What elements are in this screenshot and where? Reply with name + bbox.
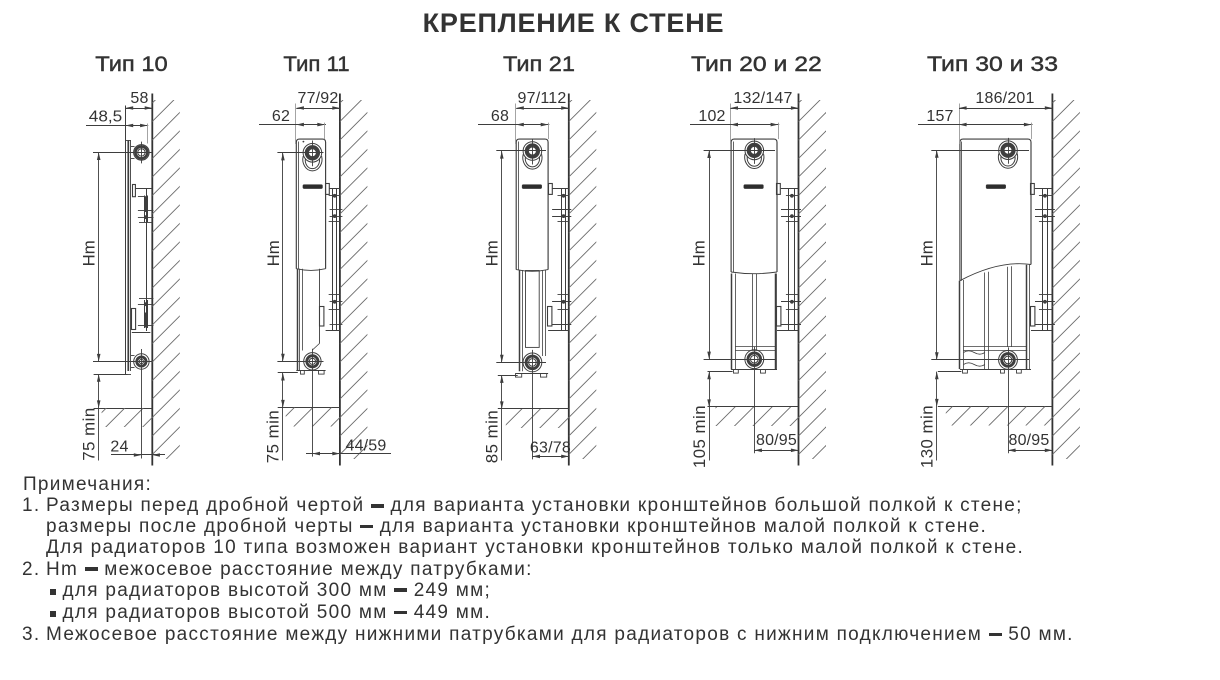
svg-text:63/78: 63/78 xyxy=(530,439,571,456)
svg-text:186/201: 186/201 xyxy=(975,90,1034,107)
svg-text:102: 102 xyxy=(698,108,725,125)
svg-text:80/95: 80/95 xyxy=(756,432,797,449)
svg-text:77/92: 77/92 xyxy=(297,90,338,107)
svg-text:Тип 30 и 33: Тип 30 и 33 xyxy=(927,51,1058,76)
svg-text:68: 68 xyxy=(491,108,509,125)
svg-text:157: 157 xyxy=(926,108,953,125)
svg-text:85 min: 85 min xyxy=(483,410,502,463)
svg-text:Hm: Hm xyxy=(482,240,501,266)
svg-text:Hm: Hm xyxy=(79,240,98,266)
svg-text:Тип 11: Тип 11 xyxy=(283,51,349,76)
svg-text:105 min: 105 min xyxy=(690,405,709,468)
svg-text:Тип 10: Тип 10 xyxy=(95,51,168,76)
svg-text:130 min: 130 min xyxy=(918,405,937,468)
svg-text:Hm: Hm xyxy=(690,240,709,266)
svg-text:24: 24 xyxy=(110,438,128,455)
svg-text:Тип 21: Тип 21 xyxy=(503,51,575,76)
svg-text:80/95: 80/95 xyxy=(1008,432,1049,449)
svg-text:Hm: Hm xyxy=(264,240,283,266)
svg-text:75 min: 75 min xyxy=(264,410,283,463)
svg-text:48,5: 48,5 xyxy=(89,109,123,126)
svg-text:132/147: 132/147 xyxy=(733,90,792,107)
svg-text:Тип 20 и 22: Тип 20 и 22 xyxy=(691,51,822,76)
svg-text:Hm: Hm xyxy=(917,240,936,266)
svg-text:58: 58 xyxy=(130,90,148,107)
svg-text:62: 62 xyxy=(272,108,290,125)
svg-text:97/112: 97/112 xyxy=(518,90,567,107)
svg-text:44/59: 44/59 xyxy=(345,437,386,454)
svg-text:75 min: 75 min xyxy=(79,407,98,460)
